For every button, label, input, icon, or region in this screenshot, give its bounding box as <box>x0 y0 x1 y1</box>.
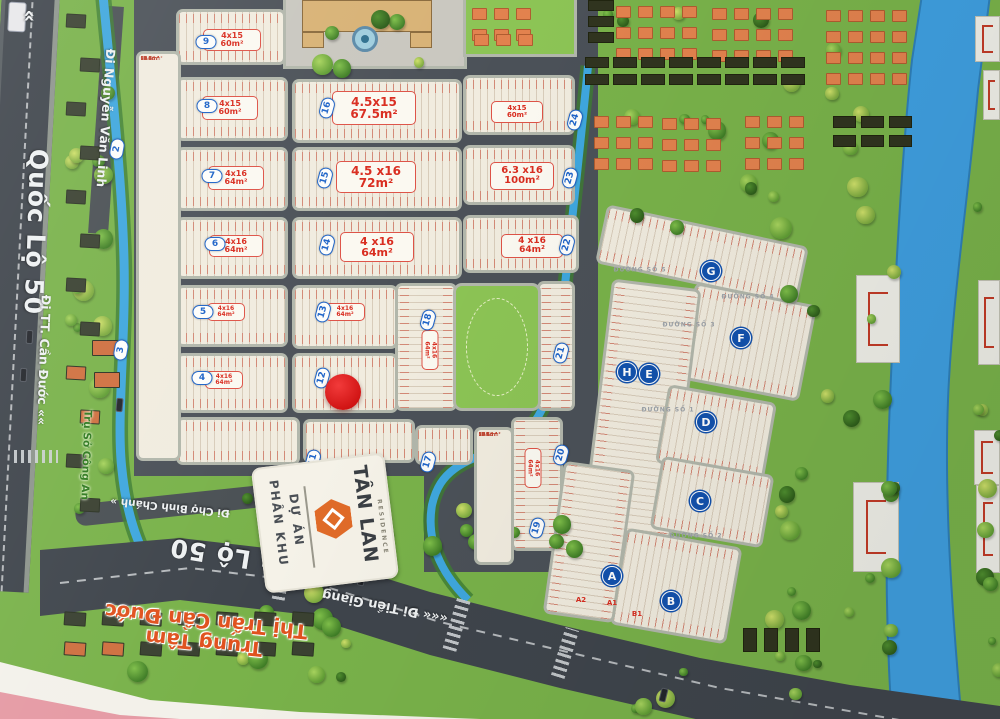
fountain <box>352 26 378 52</box>
street-name-label: ĐƯỜNG SỐ 4 <box>721 294 774 301</box>
block-area: 67.5m² <box>350 108 397 120</box>
dark-structure <box>585 74 609 85</box>
tree <box>978 479 997 498</box>
tan-lan-logo-icon <box>313 497 354 541</box>
tree <box>322 617 342 637</box>
tree <box>336 672 346 682</box>
house-roof <box>682 27 697 39</box>
house-roof <box>870 73 885 85</box>
dark-structure <box>725 57 749 68</box>
block-area: 64m² <box>424 341 430 358</box>
dark-structure <box>785 628 799 652</box>
tree <box>371 10 390 29</box>
house-roof <box>662 160 677 172</box>
house-roof <box>638 116 653 128</box>
house-roof <box>638 27 653 39</box>
block-area: 64m² <box>225 178 248 186</box>
tree <box>787 587 796 596</box>
dark-structure <box>613 74 637 85</box>
tree <box>65 314 77 326</box>
house-roof <box>682 6 697 18</box>
central-park <box>456 286 538 408</box>
house-roof <box>706 118 721 130</box>
house-roof <box>892 10 907 22</box>
house-roof <box>756 8 771 20</box>
zone-sublabel-B1: B1 <box>632 610 642 618</box>
building-mark <box>988 80 995 110</box>
block-area: 60m² <box>507 112 527 119</box>
house-roof <box>734 29 749 41</box>
house-roof <box>826 73 841 85</box>
plot-size: 144.8m² <box>141 56 163 61</box>
tree <box>630 208 644 222</box>
dark-structure <box>613 57 637 68</box>
zone-badge-D: D <box>696 412 716 432</box>
house-roof <box>616 6 631 18</box>
logo-inner-diamond <box>322 508 344 530</box>
tree <box>856 206 874 224</box>
dark-structure <box>725 74 749 85</box>
block-size-label: 4.5x1567.5m² <box>332 91 416 125</box>
tree <box>127 661 148 682</box>
block-area: 64m² <box>217 312 234 318</box>
house-roof <box>712 8 727 20</box>
block-area: 60m² <box>219 108 242 116</box>
lot-badge-6: 6 <box>205 237 226 251</box>
tree <box>765 610 784 629</box>
house-roof <box>848 52 863 64</box>
tree <box>992 663 1000 677</box>
block-dimensions: 4x16 <box>533 460 539 476</box>
car <box>115 398 123 413</box>
tree <box>865 573 875 583</box>
house-roof <box>745 158 760 170</box>
lot-badge-8: 8 <box>197 99 218 113</box>
tree <box>679 668 687 676</box>
school-wing <box>410 32 432 48</box>
house-roof <box>662 139 677 151</box>
car <box>20 368 28 382</box>
dark-structure <box>889 135 912 147</box>
house-roof <box>706 160 721 172</box>
tree <box>635 698 651 714</box>
house-roof <box>496 34 511 46</box>
block-size-label: 4x1560m² <box>491 101 543 123</box>
block-area: 64m² <box>215 380 232 386</box>
zone-block <box>613 531 739 641</box>
road-arrow: « <box>18 10 42 23</box>
lot-badge-9: 9 <box>196 35 217 49</box>
villa-roof <box>66 277 87 292</box>
tree <box>780 521 800 541</box>
street-name-label: ĐƯỜNG SỐ 2 <box>669 533 722 540</box>
villa-roof <box>66 101 87 116</box>
house-roof <box>638 158 653 170</box>
house-roof <box>638 137 653 149</box>
house-roof <box>616 27 631 39</box>
house-roof <box>870 31 885 43</box>
lot-badge-7: 7 <box>202 169 223 183</box>
dark-structure <box>861 135 884 147</box>
house-roof <box>756 29 771 41</box>
sign-line1: PHÂN KHU <box>266 479 291 567</box>
tree <box>770 217 792 239</box>
plot-size: 144.7m² <box>479 432 501 437</box>
tree <box>775 651 785 661</box>
block-area: 100m² <box>504 176 540 186</box>
tree <box>973 202 983 212</box>
river-building <box>856 275 900 363</box>
tree <box>847 177 867 197</box>
dark-structure <box>669 57 693 68</box>
house-roof <box>848 31 863 43</box>
tree <box>881 558 900 577</box>
house-roof <box>516 8 531 20</box>
dark-structure <box>641 74 665 85</box>
dark-structure <box>697 74 721 85</box>
tree <box>867 314 876 323</box>
plot-block <box>179 420 297 462</box>
block-dimensions: 4x16 <box>430 342 436 358</box>
house-roof <box>789 116 804 128</box>
road-label-quoc-lo-50-left: Quốc Lộ 50 <box>19 148 54 315</box>
house-roof <box>594 116 609 128</box>
villa-roof <box>64 611 87 627</box>
house-roof <box>892 73 907 85</box>
tree <box>983 577 997 591</box>
tree <box>780 285 798 303</box>
villa-roof <box>80 57 101 72</box>
dark-structure <box>753 57 777 68</box>
block-area: 64m² <box>519 246 545 255</box>
river-building <box>978 280 1000 365</box>
house-roof <box>826 10 841 22</box>
block-area: 64m² <box>336 312 353 318</box>
tree <box>670 220 684 234</box>
tree <box>873 390 892 409</box>
house-roof <box>684 139 699 151</box>
dark-structure <box>669 74 693 85</box>
house-roof <box>616 137 631 149</box>
tree <box>745 182 758 195</box>
house-roof <box>616 158 631 170</box>
dark-structure <box>588 16 614 27</box>
house-roof <box>789 137 804 149</box>
house-roof <box>594 137 609 149</box>
tree <box>389 14 405 30</box>
school-wing <box>302 32 324 48</box>
dark-structure <box>641 57 665 68</box>
plot-size-strip: 108.5m²88.5m²80.6m²78.5m²76.1m²75.5m²75.… <box>477 430 511 562</box>
tree <box>884 624 897 637</box>
house-roof <box>472 8 487 20</box>
house-roof <box>789 158 804 170</box>
building-mark <box>982 25 993 52</box>
villa-roof <box>64 641 87 657</box>
house-roof <box>767 116 782 128</box>
house-roof <box>662 118 677 130</box>
block-area: 72m² <box>359 177 393 189</box>
zone-badge-C: C <box>690 491 710 511</box>
dark-structure <box>588 0 614 11</box>
tree <box>882 640 897 655</box>
block-size-label: 4.5 x1672m² <box>336 161 416 193</box>
sign-divider <box>303 486 315 568</box>
villa-roof <box>80 321 101 336</box>
house-roof <box>494 8 509 20</box>
tree <box>414 57 425 68</box>
house-roof <box>660 6 675 18</box>
house-roof <box>518 34 533 46</box>
tree <box>994 430 1000 441</box>
dark-structure <box>588 32 614 43</box>
villa-roof <box>66 189 87 204</box>
block-size-label: 4 x1664m² <box>340 232 414 262</box>
house-roof <box>778 29 793 41</box>
project-sign: PHÂN KHU DỰ ÁN TÂN LAN RESIDENCE <box>251 452 399 593</box>
location-marker <box>325 374 361 410</box>
house-roof <box>734 8 749 20</box>
house-roof <box>745 137 760 149</box>
house-roof <box>778 8 793 20</box>
plot-size-strip-left: 96.4m²84.3m²75.5m²73.1m²72.5m²71.4m²70.8… <box>139 54 178 458</box>
block-size-label: 4x1664m² <box>422 330 439 370</box>
dark-structure <box>753 74 777 85</box>
dark-structure <box>889 116 912 128</box>
zone-badge-F: F <box>731 328 751 348</box>
block-size-label: 6.3 x16100m² <box>490 162 554 190</box>
dark-structure <box>806 628 820 652</box>
street-name-label: ĐƯỜNG SỐ 3 <box>662 322 715 329</box>
car <box>26 330 34 344</box>
zone-sublabel-A1: A1 <box>607 599 617 607</box>
tree <box>988 637 996 645</box>
dark-structure <box>764 628 778 652</box>
river-building <box>983 70 1000 120</box>
building-mark <box>984 297 993 348</box>
dark-structure <box>585 57 609 68</box>
fountain-center <box>361 35 369 43</box>
house-roof <box>684 118 699 130</box>
lot-badge-4: 4 <box>192 371 213 385</box>
dark-structure <box>781 74 805 85</box>
house-roof <box>684 160 699 172</box>
tree <box>821 389 834 402</box>
street-name-label: ĐƯỜNG SỐ 5 <box>613 267 666 274</box>
zone-badge-B: B <box>661 591 681 611</box>
tree <box>807 305 819 317</box>
tree <box>333 59 351 77</box>
block-size-label: 4 x1664m² <box>501 234 563 258</box>
tree <box>553 515 571 533</box>
tree <box>881 481 896 496</box>
house-roof <box>745 116 760 128</box>
house-roof <box>660 27 675 39</box>
school-complex <box>286 0 464 66</box>
zone-badge-H: H <box>617 362 637 382</box>
tree <box>308 666 325 683</box>
block-area: 64m² <box>225 246 248 254</box>
dark-structure <box>861 116 884 128</box>
zone-badge-G: G <box>701 261 721 281</box>
tree <box>341 639 350 648</box>
villa-roof <box>66 13 87 28</box>
police-building <box>66 365 87 380</box>
house-roof <box>892 31 907 43</box>
house-roof <box>848 10 863 22</box>
building-mark <box>981 441 992 474</box>
tree <box>312 54 333 75</box>
block-area: 60m² <box>221 40 244 48</box>
tree <box>977 522 994 539</box>
lot-badge-5: 5 <box>193 305 214 319</box>
house-roof <box>767 158 782 170</box>
river-building <box>975 16 1000 62</box>
house-roof <box>474 34 489 46</box>
sign-line2: DỰ ÁN <box>286 493 306 548</box>
house-roof <box>767 137 782 149</box>
tree <box>325 26 339 40</box>
police-building <box>94 372 120 388</box>
villa-roof <box>80 233 101 248</box>
block-size-label: 4x1664m² <box>325 303 365 321</box>
dark-structure <box>743 628 757 652</box>
crosswalk <box>14 450 58 463</box>
house-roof <box>712 29 727 41</box>
house-roof <box>638 6 653 18</box>
tree <box>768 191 779 202</box>
tree <box>795 655 812 672</box>
house-roof <box>826 52 841 64</box>
dark-structure <box>697 57 721 68</box>
zone-badge-E: E <box>639 364 659 384</box>
street-name-label: ĐƯỜNG SỐ 1 <box>641 407 694 414</box>
tree <box>795 467 808 480</box>
dark-structure <box>781 57 805 68</box>
house-roof <box>826 31 841 43</box>
dark-structure <box>833 135 856 147</box>
house-roof <box>594 158 609 170</box>
block-area: 64m² <box>527 459 533 476</box>
dark-structure <box>833 116 856 128</box>
house-roof <box>848 73 863 85</box>
masterplan-map: 108.5m²88.5m²80.6m²78.5m²76.1m²75.5m²75.… <box>0 0 1000 719</box>
zone-badge-A: A <box>602 566 622 586</box>
block-area: 64m² <box>361 247 393 258</box>
tree <box>423 536 443 556</box>
house-roof <box>870 52 885 64</box>
house-roof <box>706 139 721 151</box>
house-roof <box>616 116 631 128</box>
tree <box>98 458 114 474</box>
house-roof <box>892 52 907 64</box>
building-mark <box>866 500 886 555</box>
zone-sublabel-A2: A2 <box>576 596 586 604</box>
park-path <box>466 298 528 396</box>
house-roof <box>870 10 885 22</box>
tree <box>566 540 583 557</box>
block-size-label: 4x1664m² <box>525 448 542 488</box>
